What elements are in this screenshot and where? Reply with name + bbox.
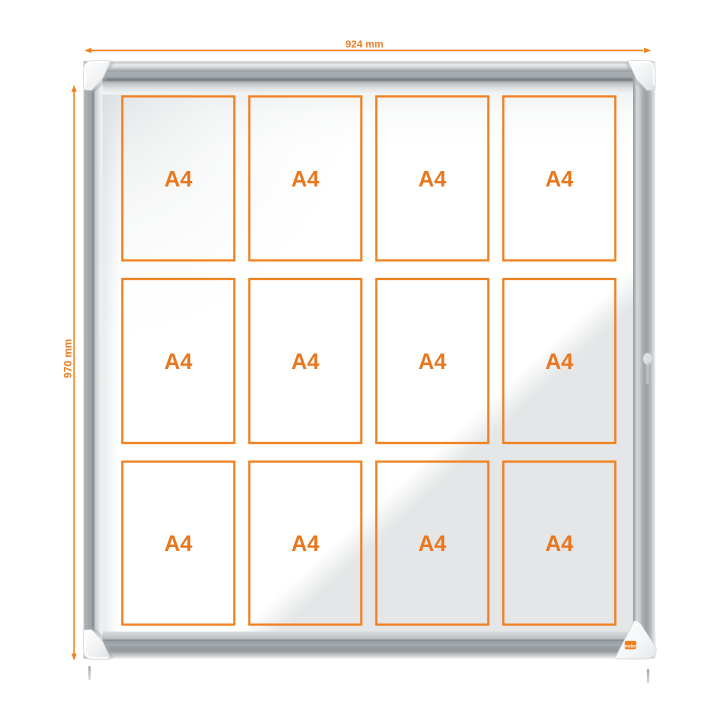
svg-text:A4: A4	[164, 167, 193, 192]
svg-text:A4: A4	[164, 349, 193, 374]
svg-text:A4: A4	[545, 531, 574, 556]
svg-text:970 mm: 970 mm	[62, 339, 74, 378]
svg-text:A4: A4	[291, 531, 320, 556]
svg-text:A4: A4	[164, 531, 193, 556]
svg-text:nobo: nobo	[625, 644, 636, 649]
svg-text:924 mm: 924 mm	[346, 39, 384, 50]
svg-text:A4: A4	[418, 531, 447, 556]
svg-text:A4: A4	[291, 349, 320, 374]
svg-text:A4: A4	[291, 167, 320, 192]
svg-text:A4: A4	[545, 167, 574, 192]
svg-text:A4: A4	[418, 167, 447, 192]
svg-text:A4: A4	[418, 349, 447, 374]
svg-text:A4: A4	[545, 349, 574, 374]
